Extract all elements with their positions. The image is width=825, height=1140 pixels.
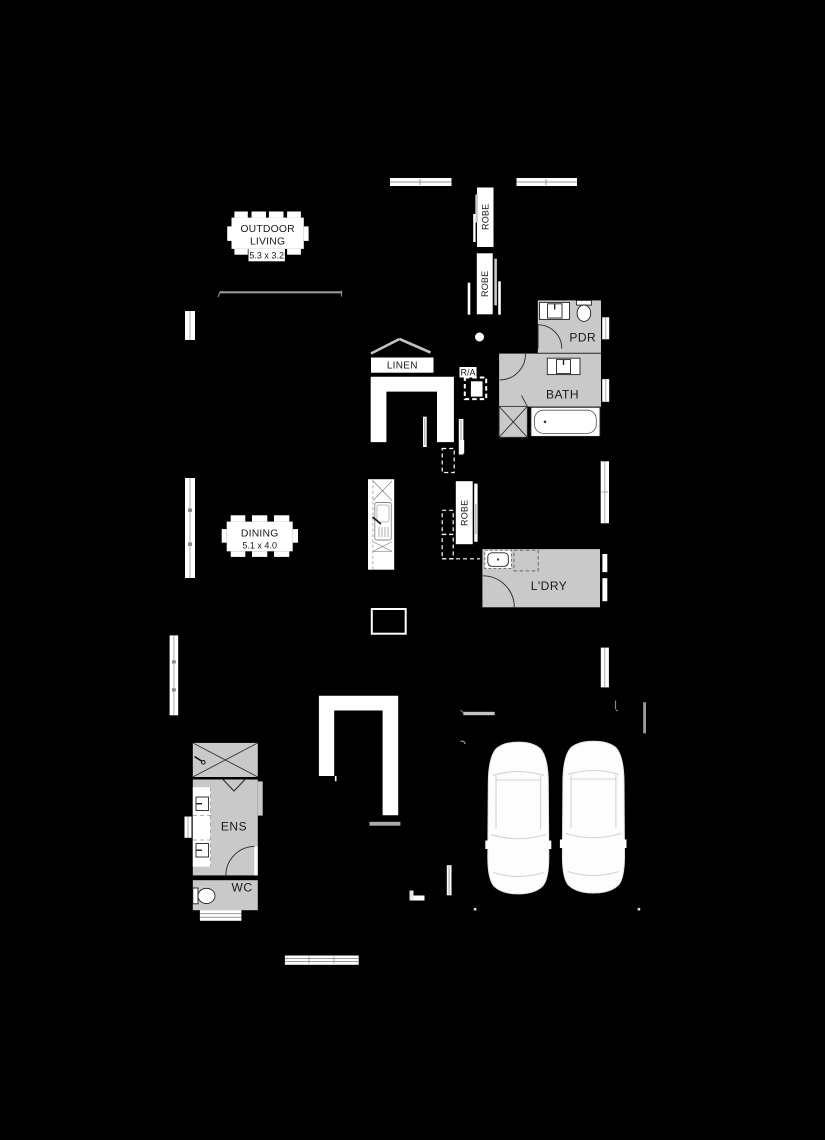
- svg-text:PDR: PDR: [569, 331, 596, 345]
- svg-text:LIVING: LIVING: [250, 237, 285, 248]
- svg-text:L'DRY: L'DRY: [531, 579, 568, 593]
- svg-text:WC: WC: [232, 881, 253, 895]
- svg-text:5.1 x 4.0: 5.1 x 4.0: [242, 540, 277, 550]
- svg-text:ROBE: ROBE: [459, 500, 469, 526]
- svg-text:LINEN: LINEN: [387, 361, 418, 372]
- svg-text:R/A: R/A: [460, 368, 475, 378]
- svg-text:BATH: BATH: [546, 388, 579, 402]
- svg-text:OUTDOOR: OUTDOOR: [240, 224, 295, 235]
- svg-text:ENS: ENS: [221, 820, 247, 834]
- svg-text:DINING: DINING: [241, 528, 279, 539]
- svg-text:ROBE: ROBE: [481, 204, 491, 230]
- svg-text:5.3 x 3.2: 5.3 x 3.2: [249, 250, 284, 260]
- svg-text:ROBE: ROBE: [480, 271, 490, 297]
